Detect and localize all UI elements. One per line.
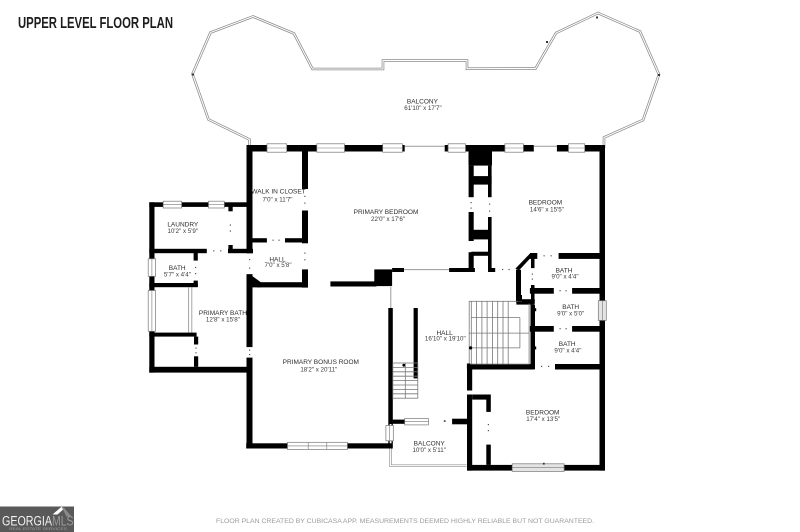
- svg-text:5'7" x 4'4": 5'7" x 4'4": [164, 272, 191, 279]
- svg-text:PRIMARY BEDROOM: PRIMARY BEDROOM: [354, 209, 419, 216]
- svg-text:7'0" x 5'8": 7'0" x 5'8": [264, 262, 291, 269]
- svg-text:PRIMARY BONUS ROOM: PRIMARY BONUS ROOM: [283, 359, 359, 366]
- svg-text:9'0" x 5'0": 9'0" x 5'0": [557, 310, 584, 317]
- svg-text:FLOOR PLAN CREATED BY CUBICASA: FLOOR PLAN CREATED BY CUBICASA APP. MEAS…: [216, 519, 594, 525]
- svg-text:7'0" x 11'7": 7'0" x 11'7": [262, 196, 292, 203]
- svg-text:18'2" x 20'11": 18'2" x 20'11": [300, 367, 337, 374]
- svg-text:10'2" x 5'9": 10'2" x 5'9": [168, 228, 199, 235]
- svg-text:10'0" x 5'11": 10'0" x 5'11": [412, 447, 445, 454]
- svg-text:9'0" x 4'4": 9'0" x 4'4": [551, 274, 578, 281]
- svg-text:61'10" x 17'7": 61'10" x 17'7": [404, 105, 441, 112]
- svg-text:17'4" x 13'5": 17'4" x 13'5": [526, 416, 560, 423]
- svg-text:22'0" x 17'6": 22'0" x 17'6": [371, 216, 405, 223]
- svg-text:WALK IN CLOSET: WALK IN CLOSET: [251, 189, 305, 196]
- svg-text:UPPER LEVEL FLOOR PLAN: UPPER LEVEL FLOOR PLAN: [18, 15, 173, 32]
- svg-text:12'8" x 15'8": 12'8" x 15'8": [206, 317, 240, 324]
- svg-text:16'10" x 19'10": 16'10" x 19'10": [425, 335, 466, 342]
- svg-text:14'6" x 15'5": 14'6" x 15'5": [530, 206, 564, 213]
- svg-text:9'0" x 4'4": 9'0" x 4'4": [554, 347, 581, 354]
- svg-text:REAL ESTATE SERVICES: REAL ESTATE SERVICES: [9, 527, 68, 531]
